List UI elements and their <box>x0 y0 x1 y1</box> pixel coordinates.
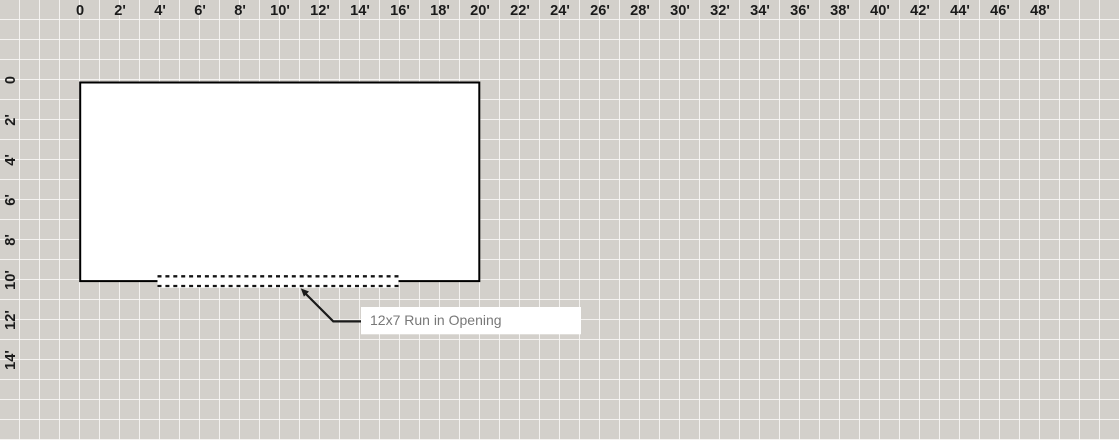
svg-text:0: 0 <box>76 3 84 19</box>
svg-text:14': 14' <box>350 3 370 19</box>
svg-text:2': 2' <box>3 114 19 126</box>
svg-text:34': 34' <box>750 3 770 19</box>
svg-text:14': 14' <box>3 350 19 370</box>
svg-text:36': 36' <box>790 3 810 19</box>
svg-text:32': 32' <box>710 3 730 19</box>
svg-text:4': 4' <box>3 154 19 166</box>
svg-text:20': 20' <box>470 3 490 19</box>
svg-text:6': 6' <box>194 3 206 19</box>
svg-text:46': 46' <box>990 3 1010 19</box>
svg-text:4': 4' <box>154 3 166 19</box>
svg-text:26': 26' <box>590 3 610 19</box>
svg-text:12x7 Run in Opening: 12x7 Run in Opening <box>370 312 502 328</box>
svg-text:40': 40' <box>870 3 890 19</box>
svg-text:8': 8' <box>234 3 246 19</box>
svg-text:22': 22' <box>510 3 530 19</box>
svg-text:28': 28' <box>630 3 650 19</box>
svg-text:16': 16' <box>390 3 410 19</box>
svg-text:24': 24' <box>550 3 570 19</box>
svg-text:8': 8' <box>3 234 19 246</box>
svg-text:0: 0 <box>3 76 19 84</box>
svg-text:12': 12' <box>310 3 330 19</box>
svg-text:2': 2' <box>114 3 126 19</box>
svg-text:48': 48' <box>1030 3 1050 19</box>
svg-text:18': 18' <box>430 3 450 19</box>
svg-text:6': 6' <box>3 194 19 206</box>
svg-text:44': 44' <box>950 3 970 19</box>
svg-text:12': 12' <box>3 310 19 330</box>
svg-text:10': 10' <box>270 3 290 19</box>
svg-text:30': 30' <box>670 3 690 19</box>
svg-text:10': 10' <box>3 270 19 290</box>
svg-text:38': 38' <box>830 3 850 19</box>
svg-text:42': 42' <box>910 3 930 19</box>
